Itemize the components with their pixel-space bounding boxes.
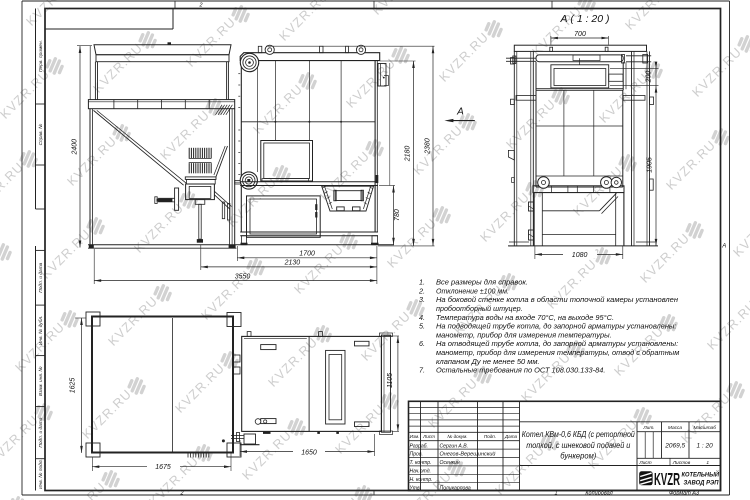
svg-text:Онегов-Верещинский: Онегов-Верещинский [440, 451, 496, 458]
svg-text:Остальные требования по ОСТ 10: Остальные требования по ОСТ 108.030.133-… [436, 366, 605, 375]
svg-text:Отклонение ±100 мм.: Отклонение ±100 мм. [436, 286, 509, 295]
svg-text:Котел КВм-0,6 КБД (с ретортной: Котел КВм-0,6 КБД (с ретортной [522, 430, 636, 439]
svg-text:Масштаб: Масштаб [693, 425, 716, 431]
svg-text:Перв. примен.: Перв. примен. [38, 40, 44, 72]
svg-text:700: 700 [574, 31, 586, 38]
svg-text:Т. контр.: Т. контр. [410, 460, 432, 466]
svg-text:1105: 1105 [387, 373, 394, 388]
svg-text:2.: 2. [418, 286, 425, 295]
svg-text:На подводящей трубе котла, до: На подводящей трубе котла, до запорной а… [436, 322, 677, 331]
svg-text:Температура воды на входе 70°С: Температура воды на входе 70°С, на выход… [436, 313, 614, 322]
svg-text:Копировал: Копировал [585, 491, 612, 497]
svg-text:Утв.: Утв. [410, 485, 422, 491]
svg-text:Н. контр.: Н. контр. [410, 477, 433, 483]
svg-text:1: 1 [554, 491, 557, 497]
svg-text:1 : 20: 1 : 20 [696, 443, 713, 450]
svg-text:1625: 1625 [70, 378, 77, 394]
svg-text:2400: 2400 [72, 139, 79, 156]
svg-text:манометр, прибор для измерения: манометр, прибор для измерения температу… [436, 348, 679, 357]
svg-text:Пров.: Пров. [410, 452, 423, 458]
svg-text:А: А [721, 244, 726, 250]
svg-text:Изм.: Изм. [410, 434, 420, 439]
svg-text:1905: 1905 [647, 157, 654, 173]
svg-text:Лист: Лист [638, 460, 651, 466]
svg-text:Поликарпова: Поликарпова [440, 485, 471, 491]
svg-text:Сергин А.В.: Сергин А.В. [440, 443, 469, 449]
svg-text:Разраб.: Разраб. [410, 443, 428, 449]
svg-text:Осенкин: Осенкин [440, 460, 460, 466]
svg-text:200: 200 [646, 71, 653, 84]
svg-text:Инв. № дубл.: Инв. № дубл. [38, 316, 44, 346]
svg-text:А ( 1 : 20 ): А ( 1 : 20 ) [560, 13, 610, 25]
svg-text:1: 1 [706, 460, 709, 466]
svg-text:А: А [456, 107, 464, 118]
svg-text:1.: 1. [419, 278, 425, 287]
svg-text:пробоотборный штуцер.: пробоотборный штуцер. [436, 304, 523, 313]
svg-text:Все размеры для справок.: Все размеры для справок. [436, 278, 528, 287]
svg-text:Масса: Масса [668, 425, 683, 431]
svg-text:Листов: Листов [672, 460, 691, 466]
svg-text:топкой, с шнековой подачей и: топкой, с шнековой подачей и [526, 441, 631, 450]
svg-text:бункером): бункером) [560, 452, 596, 461]
svg-text:6.: 6. [419, 339, 425, 348]
svg-text:1080: 1080 [572, 252, 588, 259]
svg-text:1700: 1700 [299, 251, 315, 258]
svg-text:7.: 7. [419, 366, 425, 375]
svg-text:2130: 2130 [284, 260, 301, 267]
svg-text:Подп. и дата: Подп. и дата [38, 262, 44, 292]
svg-text:манометр, прибор для измерения: манометр, прибор для измерения температу… [436, 330, 612, 339]
svg-text:1650: 1650 [301, 449, 317, 456]
svg-text:КОТЕЛЬНЫЙ: КОТЕЛЬНЫЙ [682, 470, 720, 478]
svg-text:Подп.: Подп. [484, 434, 496, 439]
svg-text:2: 2 [179, 491, 183, 497]
svg-text:5.: 5. [419, 322, 425, 331]
svg-text:Справ. №: Справ. № [38, 124, 44, 146]
svg-text:№ докум.: № докум. [447, 434, 467, 439]
svg-text:Дата: Дата [504, 434, 518, 439]
svg-text:4.: 4. [419, 313, 425, 322]
svg-text:780: 780 [394, 209, 401, 221]
svg-text:1675: 1675 [155, 464, 171, 471]
svg-text:Формат А3: Формат А3 [669, 491, 700, 497]
svg-text:Лит.: Лит. [642, 425, 654, 431]
svg-text:2: 2 [198, 2, 202, 8]
svg-text:ЗАВОД РЭП: ЗАВОД РЭП [684, 480, 720, 486]
svg-text:На отводящей трубе котла, до з: На отводящей трубе котла, до запорной ар… [436, 339, 678, 348]
svg-text:3550: 3550 [235, 273, 251, 280]
svg-text:3.: 3. [419, 295, 425, 304]
svg-text:2380: 2380 [424, 138, 431, 155]
svg-text:2069,5: 2069,5 [664, 443, 685, 450]
svg-text:клапаном Ду не менее 50 мм.: клапаном Ду не менее 50 мм. [436, 357, 540, 366]
svg-text:Взам. инв. №: Взам. инв. № [38, 366, 44, 396]
svg-text:Нач.отд.: Нач.отд. [410, 469, 431, 475]
svg-text:Лист: Лист [422, 434, 435, 439]
svg-text:2180: 2180 [405, 146, 412, 163]
svg-text:На боковой стенке котла в обла: На боковой стенке котла в области топочн… [436, 295, 678, 304]
svg-text:Подп. и дата: Подп. и дата [38, 417, 44, 447]
svg-text:Инв. № подл.: Инв. № подл. [38, 459, 44, 489]
svg-text:KVZR: KVZR [654, 469, 680, 489]
